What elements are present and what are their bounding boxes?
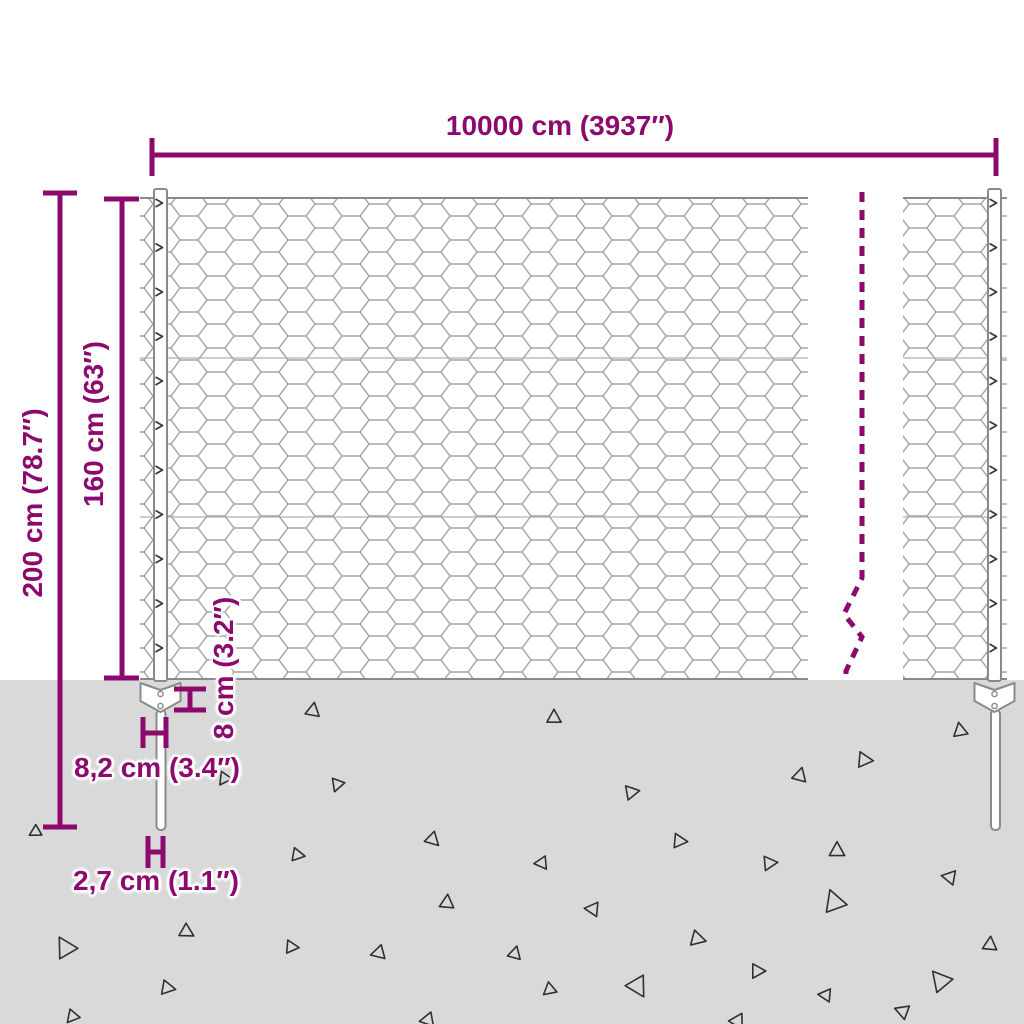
dimension-label-spike-width: 2,7 cm (1.1″)	[73, 867, 239, 895]
plate-hole	[158, 691, 163, 696]
fence-mesh-left	[140, 197, 808, 680]
dimension-label-mesh-height: 160 cm (63″)	[80, 341, 108, 507]
dimension-label-plate-width: 8,2 cm (3.4″)	[74, 754, 240, 782]
fence-dimension-diagram: { "labels": { "total_width": "10000 cm (…	[0, 0, 1024, 1024]
right-ground-spike	[991, 710, 1000, 830]
break-dashed-line	[844, 192, 862, 681]
plate-hole	[158, 703, 163, 708]
dimension-label-total-height: 200 cm (78.7″)	[19, 408, 47, 597]
plate-hole	[992, 703, 997, 708]
dimension-mesh-height	[104, 199, 139, 678]
dimension-total-width	[152, 138, 996, 176]
dimension-label-plate-height: 8 cm (3.2″)	[210, 597, 238, 740]
mesh-left	[140, 197, 808, 680]
plate-hole	[992, 691, 997, 696]
dimension-label-total-width: 10000 cm (3937″)	[446, 112, 674, 140]
